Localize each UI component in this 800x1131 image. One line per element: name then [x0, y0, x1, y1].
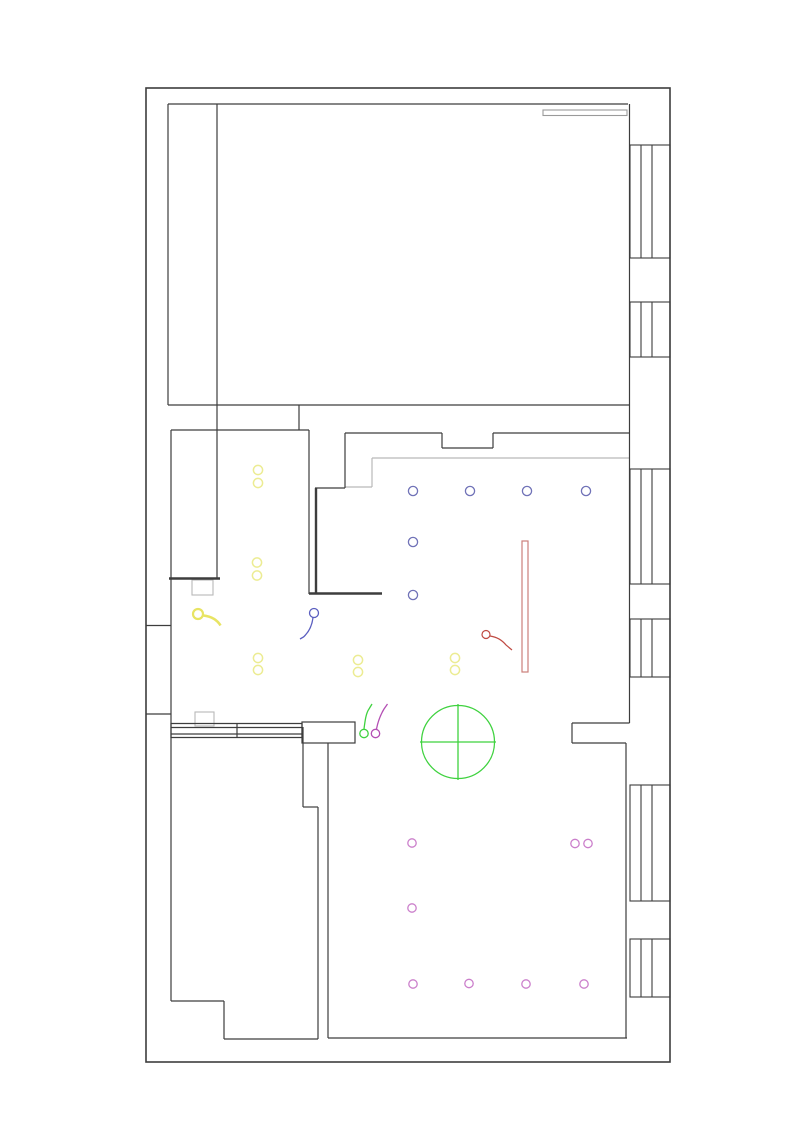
downlight-magenta	[408, 839, 416, 847]
switch-green-tail	[364, 704, 372, 729]
wall-opening-rect	[302, 722, 355, 743]
window-symbol	[630, 785, 670, 901]
window-symbol	[630, 145, 670, 258]
downlight-blue	[522, 486, 531, 495]
downlight-magenta	[571, 839, 579, 847]
downlight-yellow	[253, 665, 262, 674]
linear-fixture-red	[522, 541, 528, 672]
wall-lamp-yellow-arm	[204, 616, 221, 626]
column-outline	[192, 580, 213, 595]
downlight-magenta	[465, 979, 473, 987]
downlight-yellow	[253, 478, 262, 487]
switch-red-tail	[490, 636, 512, 650]
switch-blue-tail	[300, 618, 313, 640]
downlight-blue	[408, 537, 417, 546]
floor-plan-page	[0, 0, 800, 1131]
window-symbol	[630, 619, 670, 677]
downlight-magenta	[580, 980, 588, 988]
wall-lamp-yellow	[193, 609, 203, 619]
downlight-yellow	[253, 465, 262, 474]
switch-green	[360, 729, 368, 737]
downlight-yellow	[450, 653, 459, 662]
downlight-yellow	[353, 667, 362, 676]
switch-magenta-tail	[377, 704, 388, 729]
downlight-blue	[408, 486, 417, 495]
beam-outline	[543, 110, 627, 116]
outer-wall	[146, 88, 670, 1062]
downlight-magenta	[584, 839, 592, 847]
switch-red	[482, 631, 490, 639]
downlight-magenta	[522, 980, 530, 988]
downlight-yellow	[353, 655, 362, 664]
floor-plan-svg	[0, 0, 800, 1131]
downlight-blue	[465, 486, 474, 495]
switch-blue	[310, 609, 319, 618]
downlight-yellow	[252, 558, 261, 567]
downlight-magenta	[408, 904, 416, 912]
downlight-yellow	[450, 665, 459, 674]
downlight-blue	[581, 486, 590, 495]
window-symbol	[630, 302, 670, 357]
downlight-yellow	[253, 653, 262, 662]
downlight-blue	[408, 590, 417, 599]
window-symbol	[630, 939, 670, 997]
switch-magenta	[371, 729, 379, 737]
downlight-yellow	[252, 571, 261, 580]
window-symbol	[630, 469, 670, 584]
downlight-magenta	[409, 980, 417, 988]
